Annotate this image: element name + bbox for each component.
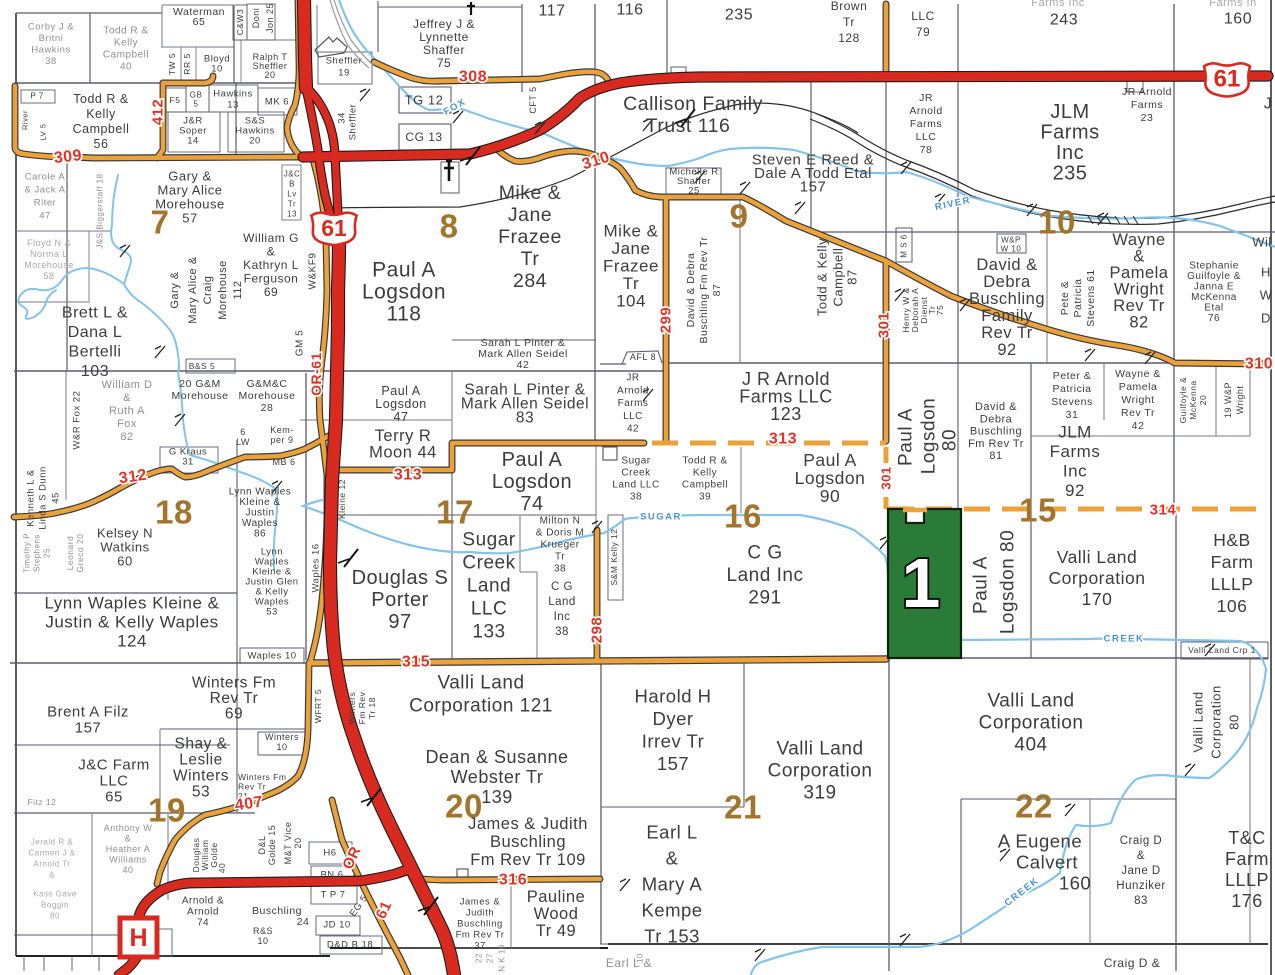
svg-text:103: 103 xyxy=(81,363,109,380)
svg-text:Farms: Farms xyxy=(1131,99,1163,111)
svg-text:Mike &: Mike & xyxy=(604,222,659,241)
svg-text:Wayne &: Wayne & xyxy=(1115,368,1161,380)
svg-text:JLM: JLM xyxy=(1058,423,1092,442)
svg-text:Moon 44: Moon 44 xyxy=(369,444,437,462)
svg-text:319: 319 xyxy=(803,783,836,804)
svg-text:42: 42 xyxy=(517,359,530,371)
svg-text:M S 6: M S 6 xyxy=(900,234,909,257)
svg-text:Kelly: Kelly xyxy=(86,107,116,121)
svg-text:Gary &: Gary & xyxy=(169,271,181,308)
svg-text:A Eugene: A Eugene xyxy=(998,831,1082,852)
svg-text:McKenna: McKenna xyxy=(1188,380,1198,419)
svg-text:74: 74 xyxy=(197,918,209,929)
svg-text:28: 28 xyxy=(261,402,274,414)
svg-text:Winters: Winters xyxy=(173,768,229,785)
svg-text:301: 301 xyxy=(879,466,894,489)
svg-text:Lynn Waples Kleine &: Lynn Waples Kleine & xyxy=(44,594,219,613)
svg-text:Logsdon: Logsdon xyxy=(795,468,866,488)
svg-text:W&P: W&P xyxy=(1001,236,1021,245)
svg-text:Pete &: Pete & xyxy=(1059,281,1071,316)
svg-text:60: 60 xyxy=(117,554,132,569)
svg-text:37: 37 xyxy=(474,941,486,952)
svg-text:Buschling: Buschling xyxy=(457,919,503,930)
svg-text:Morehouse: Morehouse xyxy=(24,260,74,270)
svg-text:David &: David & xyxy=(975,401,1017,413)
svg-text:Buschling: Buschling xyxy=(969,290,1045,308)
svg-text:N K 19: N K 19 xyxy=(498,944,507,972)
svg-text:J: J xyxy=(1264,96,1273,113)
svg-text:JD 10: JD 10 xyxy=(323,920,350,931)
svg-text:Buschling: Buschling xyxy=(970,426,1022,438)
svg-text:Boggin: Boggin xyxy=(41,901,69,910)
svg-text:Dyer: Dyer xyxy=(652,708,693,729)
svg-text:315: 315 xyxy=(402,654,430,671)
svg-text:1: 1 xyxy=(902,544,941,622)
svg-text:Campbell: Campbell xyxy=(103,50,149,61)
svg-text:Waples 10: Waples 10 xyxy=(247,651,296,662)
svg-text:Fm Rev Tr: Fm Rev Tr xyxy=(968,438,1024,450)
svg-text:W: W xyxy=(1260,288,1273,303)
svg-text:86: 86 xyxy=(254,529,266,540)
svg-text:&: & xyxy=(1137,850,1145,862)
svg-text:Arnold &: Arnold & xyxy=(182,896,224,907)
svg-text:Corporation: Corporation xyxy=(979,713,1084,734)
svg-text:Etal: Etal xyxy=(1204,303,1223,314)
svg-text:CFT 5: CFT 5 xyxy=(528,86,538,113)
svg-text:301: 301 xyxy=(876,312,893,339)
svg-text:Debra: Debra xyxy=(980,413,1013,425)
svg-text:82: 82 xyxy=(120,431,133,443)
svg-text:87: 87 xyxy=(845,269,860,284)
svg-text:C&W3: C&W3 xyxy=(235,9,245,36)
svg-text:65: 65 xyxy=(193,16,206,28)
svg-text:H: H xyxy=(1261,265,1271,280)
svg-text:D&D B 18: D&D B 18 xyxy=(327,940,373,951)
svg-text:243: 243 xyxy=(1050,12,1078,29)
svg-text:47: 47 xyxy=(394,410,409,424)
svg-text:Callison Family: Callison Family xyxy=(623,93,763,115)
svg-text:Anthony W: Anthony W xyxy=(104,823,153,833)
svg-text:5: 5 xyxy=(194,100,199,109)
svg-text:69: 69 xyxy=(264,285,278,299)
svg-text:133: 133 xyxy=(472,622,505,643)
svg-text:James &: James & xyxy=(460,897,501,908)
svg-text:Jane D: Jane D xyxy=(1121,865,1160,877)
svg-text:Stephens: Stephens xyxy=(33,534,42,572)
svg-text:Kelly: Kelly xyxy=(114,38,138,49)
svg-text:Todd R &: Todd R & xyxy=(682,456,727,467)
svg-text:Jane: Jane xyxy=(612,239,651,258)
svg-text:JR: JR xyxy=(919,92,933,104)
svg-text:Kelsey N: Kelsey N xyxy=(97,526,153,541)
svg-text:Corporation 121: Corporation 121 xyxy=(409,696,553,717)
svg-text:Stevens 61: Stevens 61 xyxy=(1085,269,1097,327)
svg-text:Earl L: Earl L xyxy=(646,822,697,843)
svg-text:Brent A Filz: Brent A Filz xyxy=(47,704,129,721)
svg-text:157: 157 xyxy=(800,179,827,196)
svg-text:8: 8 xyxy=(440,208,459,245)
svg-text:Sheffler: Sheffler xyxy=(348,104,359,141)
svg-text:Norma L: Norma L xyxy=(30,249,68,259)
svg-text:Farms: Farms xyxy=(618,398,649,409)
svg-text:128: 128 xyxy=(838,31,860,45)
svg-text:83: 83 xyxy=(1134,895,1148,907)
svg-text:Sheffler: Sheffler xyxy=(326,56,363,67)
svg-text:C G: C G xyxy=(747,543,782,564)
svg-text:&: & xyxy=(49,871,55,880)
svg-text:Craig D: Craig D xyxy=(1120,835,1162,847)
svg-text:Wright: Wright xyxy=(1121,394,1154,406)
svg-text:Carole A: Carole A xyxy=(25,172,66,183)
svg-text:16: 16 xyxy=(724,498,762,535)
svg-text:Morehouse: Morehouse xyxy=(238,390,295,402)
svg-text:Creek: Creek xyxy=(462,553,515,574)
svg-text:39: 39 xyxy=(699,492,711,503)
svg-text:Paul A: Paul A xyxy=(502,449,563,471)
svg-text:42: 42 xyxy=(1132,420,1145,432)
svg-text:Arnold Tr: Arnold Tr xyxy=(34,860,71,869)
svg-text:56: 56 xyxy=(94,137,109,151)
svg-text:Buschling: Buschling xyxy=(252,905,302,917)
svg-text:Corporation: Corporation xyxy=(1049,568,1146,588)
svg-text:Sugar: Sugar xyxy=(462,530,515,551)
svg-text:Todd R &: Todd R & xyxy=(103,26,148,37)
svg-text:87: 87 xyxy=(711,284,723,297)
svg-text:118: 118 xyxy=(387,303,422,326)
svg-text:Winters: Winters xyxy=(347,692,357,724)
svg-text:40: 40 xyxy=(120,62,132,73)
svg-text:OR-61: OR-61 xyxy=(308,352,324,396)
svg-text:Rev Tr: Rev Tr xyxy=(981,324,1033,342)
svg-text:Jeffrey J &: Jeffrey J & xyxy=(413,17,475,31)
svg-text:W&KF9: W&KF9 xyxy=(308,253,319,290)
svg-text:80: 80 xyxy=(940,429,961,451)
svg-text:Wayne: Wayne xyxy=(1112,231,1165,249)
svg-text:Winters Fm: Winters Fm xyxy=(192,675,276,692)
svg-text:Lynnette: Lynnette xyxy=(419,30,469,44)
svg-text:298: 298 xyxy=(589,617,606,644)
svg-text:Carmen J &: Carmen J & xyxy=(28,849,75,858)
svg-text:Irrev Tr: Irrev Tr xyxy=(642,731,705,752)
svg-text:Tr 153: Tr 153 xyxy=(644,926,700,947)
svg-text:Peter &: Peter & xyxy=(1053,370,1092,382)
svg-text:Campbell: Campbell xyxy=(831,248,846,307)
svg-text:Jane: Jane xyxy=(508,204,552,226)
svg-text:Valli Land: Valli Land xyxy=(987,691,1074,712)
svg-text:Guilfoyle &: Guilfoyle & xyxy=(1178,377,1188,424)
svg-text:81: 81 xyxy=(989,450,1002,462)
svg-text:104: 104 xyxy=(616,292,646,311)
svg-text:LLC: LLC xyxy=(623,411,643,422)
svg-text:14: 14 xyxy=(187,136,199,147)
svg-text:404: 404 xyxy=(1014,735,1047,756)
svg-text:Bertelli: Bertelli xyxy=(69,344,122,361)
svg-text:Gary &: Gary & xyxy=(168,169,211,184)
svg-text:Lv: Lv xyxy=(287,190,296,199)
svg-text:R&S: R&S xyxy=(253,926,273,936)
svg-text:WFRT 5: WFRT 5 xyxy=(313,689,323,723)
svg-text:116: 116 xyxy=(616,2,643,19)
svg-text:9: 9 xyxy=(730,198,749,235)
svg-text:P 7: P 7 xyxy=(30,92,43,101)
svg-text:Arnold: Arnold xyxy=(187,907,219,918)
svg-text:79: 79 xyxy=(916,25,930,39)
svg-text:Terry R: Terry R xyxy=(375,427,432,445)
svg-text:Pauline: Pauline xyxy=(527,888,586,906)
svg-text:Ruth A: Ruth A xyxy=(109,405,145,417)
svg-text:H: H xyxy=(129,924,147,952)
svg-text:40: 40 xyxy=(217,863,227,873)
svg-text:Logsdon: Logsdon xyxy=(362,281,446,304)
svg-text:& Doris M: & Doris M xyxy=(536,528,584,539)
svg-text:123: 123 xyxy=(770,404,802,424)
svg-text:57: 57 xyxy=(182,211,197,226)
svg-text:61: 61 xyxy=(321,215,347,241)
svg-text:Land: Land xyxy=(467,576,511,597)
svg-text:William D: William D xyxy=(102,379,153,391)
svg-text:GB: GB xyxy=(190,91,203,100)
svg-text:BN 6: BN 6 xyxy=(320,870,343,881)
svg-text:157: 157 xyxy=(75,720,102,737)
svg-text:80: 80 xyxy=(50,912,60,921)
svg-text:Morehouse: Morehouse xyxy=(217,260,229,320)
svg-text:124: 124 xyxy=(117,632,147,651)
svg-text:Mary Alice &: Mary Alice & xyxy=(187,256,199,323)
svg-text:Justin: Justin xyxy=(245,508,274,519)
svg-text:19: 19 xyxy=(148,792,186,829)
svg-text:Linda S Dunn: Linda S Dunn xyxy=(38,466,49,530)
svg-text:Hawkins: Hawkins xyxy=(31,45,70,56)
svg-text:Golde 15: Golde 15 xyxy=(267,825,277,866)
svg-text:Todd & Kelly: Todd & Kelly xyxy=(815,238,830,316)
svg-text:W&R Fox 22: W&R Fox 22 xyxy=(72,391,83,450)
svg-text:18: 18 xyxy=(155,494,193,531)
svg-text:38: 38 xyxy=(45,56,57,67)
svg-text:Tr: Tr xyxy=(623,274,639,293)
svg-text:Mike &: Mike & xyxy=(499,182,562,204)
svg-text:7: 7 xyxy=(151,204,170,241)
svg-text:&: & xyxy=(123,392,131,404)
svg-text:Dean & Susanne: Dean & Susanne xyxy=(425,747,568,767)
svg-text:34: 34 xyxy=(337,112,348,124)
svg-text:Janna E: Janna E xyxy=(1194,282,1234,293)
svg-text:Patricia: Patricia xyxy=(1072,278,1084,317)
svg-text:106: 106 xyxy=(1217,596,1248,616)
svg-text:112: 112 xyxy=(232,280,244,299)
svg-text:47: 47 xyxy=(39,211,51,222)
svg-text:Valli Land: Valli Land xyxy=(437,673,524,694)
svg-text:Wil: Wil xyxy=(1252,235,1272,250)
svg-text:Valli Land: Valli Land xyxy=(1191,691,1206,752)
svg-text:31: 31 xyxy=(1066,409,1079,421)
svg-text:Jerald R &: Jerald R & xyxy=(31,838,74,847)
svg-text:10: 10 xyxy=(257,936,268,946)
svg-text:20: 20 xyxy=(249,136,261,147)
svg-text:Shay &: Shay & xyxy=(175,736,228,753)
svg-text:W 10: W 10 xyxy=(1001,245,1022,254)
svg-text:58: 58 xyxy=(43,271,54,281)
svg-text:Patricia: Patricia xyxy=(1052,383,1091,395)
svg-text:Logsdon: Logsdon xyxy=(919,398,940,474)
svg-text:69: 69 xyxy=(225,706,243,723)
svg-text:Fox: Fox xyxy=(117,418,137,430)
svg-text:Tr: Tr xyxy=(555,552,565,563)
svg-text:Leonard: Leonard xyxy=(65,536,75,571)
svg-text:Britni: Britni xyxy=(39,33,64,44)
svg-text:75: 75 xyxy=(935,305,945,315)
svg-text:Rev Tr: Rev Tr xyxy=(1121,407,1155,419)
svg-text:Trust 116: Trust 116 xyxy=(646,115,731,137)
svg-text:Harold H: Harold H xyxy=(635,686,712,707)
svg-text:82: 82 xyxy=(1129,314,1148,332)
svg-text:Paul A: Paul A xyxy=(381,384,420,398)
svg-text:Sugar: Sugar xyxy=(621,456,650,467)
svg-text:Valli Land Crp 1: Valli Land Crp 1 xyxy=(1188,645,1256,655)
svg-text:Kass Gave: Kass Gave xyxy=(33,890,77,899)
svg-text:Morehouse: Morehouse xyxy=(171,390,228,402)
svg-text:53: 53 xyxy=(266,607,278,618)
svg-text:Tr: Tr xyxy=(843,15,855,29)
svg-text:J&C Farm: J&C Farm xyxy=(78,757,150,774)
svg-text:20: 20 xyxy=(264,70,275,80)
svg-text:92: 92 xyxy=(997,341,1016,359)
svg-text:235: 235 xyxy=(1053,163,1088,185)
svg-text:&: & xyxy=(125,834,132,844)
svg-text:&: & xyxy=(267,245,276,259)
svg-text:Milton N: Milton N xyxy=(540,516,581,527)
svg-text:Jon 25: Jon 25 xyxy=(265,3,275,33)
svg-text:M&T Vice: M&T Vice xyxy=(283,822,293,865)
svg-text:Brown: Brown xyxy=(831,0,868,13)
svg-text:& Jack A: & Jack A xyxy=(25,185,66,196)
svg-text:Tr: Tr xyxy=(521,248,540,270)
svg-text:Inc: Inc xyxy=(1063,462,1087,481)
svg-text:76: 76 xyxy=(1208,313,1220,324)
svg-text:13: 13 xyxy=(227,100,239,111)
svg-text:10: 10 xyxy=(1038,204,1076,241)
svg-text:&: & xyxy=(1133,248,1145,266)
svg-text:24: 24 xyxy=(297,916,310,928)
svg-text:LW: LW xyxy=(236,437,250,447)
svg-text:38: 38 xyxy=(555,626,569,638)
svg-text:Rev Tr: Rev Tr xyxy=(210,690,259,707)
svg-text:157: 157 xyxy=(657,753,689,774)
svg-text:Corby J &: Corby J & xyxy=(28,22,74,33)
svg-text:J&S Biggerstaff 18: J&S Biggerstaff 18 xyxy=(96,173,105,248)
svg-text:40: 40 xyxy=(122,865,133,875)
svg-text:139: 139 xyxy=(481,787,513,807)
svg-text:LLC: LLC xyxy=(916,131,937,143)
svg-text:JLM: JLM xyxy=(1050,101,1089,123)
svg-text:309: 309 xyxy=(53,147,83,167)
svg-text:Creek: Creek xyxy=(621,468,651,479)
svg-text:B: B xyxy=(289,180,295,189)
svg-text:Krueger: Krueger xyxy=(540,540,579,551)
svg-text:Lynn Waples: Lynn Waples xyxy=(229,487,292,498)
svg-text:20: 20 xyxy=(1198,395,1208,405)
svg-text:80: 80 xyxy=(1227,714,1242,729)
svg-text:JR: JR xyxy=(626,373,639,384)
svg-text:Family: Family xyxy=(981,307,1033,325)
svg-text:Kleine &: Kleine & xyxy=(239,497,280,508)
svg-text:Craig D &: Craig D & xyxy=(1104,956,1161,970)
svg-text:19: 19 xyxy=(338,68,350,79)
svg-text:Craig: Craig xyxy=(202,276,214,305)
svg-text:RR 5: RR 5 xyxy=(182,53,192,74)
svg-text:61: 61 xyxy=(1214,66,1241,93)
svg-text:Brett L &: Brett L & xyxy=(62,305,128,322)
svg-text:Corporation: Corporation xyxy=(768,761,873,782)
svg-text:Tr 18: Tr 18 xyxy=(367,697,377,719)
svg-text:Fitz 12: Fitz 12 xyxy=(27,797,56,807)
svg-text:Tr 49: Tr 49 xyxy=(536,922,576,940)
svg-text:27: 27 xyxy=(486,953,495,963)
svg-text:Fm Rev Tr 109: Fm Rev Tr 109 xyxy=(470,851,586,869)
svg-text:CREEK: CREEK xyxy=(1104,634,1145,645)
svg-text:Paul A: Paul A xyxy=(971,556,992,614)
svg-text:160: 160 xyxy=(1059,873,1091,894)
svg-text:&: & xyxy=(666,848,679,869)
svg-text:Logsdon: Logsdon xyxy=(492,471,572,493)
svg-text:Frazee: Frazee xyxy=(603,257,659,276)
svg-text:LLC: LLC xyxy=(911,9,935,23)
svg-text:Todd R &: Todd R & xyxy=(73,92,129,106)
svg-text:19 W&P: 19 W&P xyxy=(1223,382,1233,418)
svg-text:Doni: Doni xyxy=(251,8,261,29)
svg-text:Williams: Williams xyxy=(109,855,147,865)
svg-text:Hawkins: Hawkins xyxy=(213,89,252,100)
svg-text:74: 74 xyxy=(520,493,543,515)
svg-text:Logsdon: Logsdon xyxy=(375,397,426,411)
svg-text:Kempe: Kempe xyxy=(641,900,702,921)
svg-text:38: 38 xyxy=(630,492,642,503)
svg-text:92: 92 xyxy=(1065,481,1085,500)
svg-text:B&S 5: B&S 5 xyxy=(189,361,216,371)
svg-text:H&B: H&B xyxy=(1213,530,1250,550)
svg-text:31: 31 xyxy=(182,457,194,468)
svg-text:Waples 16: Waples 16 xyxy=(311,543,322,592)
svg-text:Land LLC: Land LLC xyxy=(612,480,659,491)
svg-text:20 G&M: 20 G&M xyxy=(179,378,221,390)
svg-text:45: 45 xyxy=(51,492,62,504)
svg-text:316: 316 xyxy=(499,872,527,889)
svg-text:T&C: T&C xyxy=(1228,828,1266,848)
svg-text:MK 6: MK 6 xyxy=(265,97,289,108)
svg-text:T P 7: T P 7 xyxy=(321,890,346,901)
svg-text:10: 10 xyxy=(211,64,223,75)
svg-text:313: 313 xyxy=(394,467,422,484)
svg-text:Earl L &: Earl L & xyxy=(606,956,652,970)
svg-text:97: 97 xyxy=(388,611,411,633)
svg-text:Rev Tr: Rev Tr xyxy=(238,782,266,792)
svg-text:Timothy P: Timothy P xyxy=(23,533,32,573)
svg-text:CG 13: CG 13 xyxy=(405,130,442,144)
svg-text:Pamela: Pamela xyxy=(1110,264,1169,282)
svg-text:C G: C G xyxy=(551,581,573,593)
svg-text:117: 117 xyxy=(538,3,565,20)
svg-text:Rev Tr: Rev Tr xyxy=(1113,297,1165,315)
svg-text:299: 299 xyxy=(658,307,675,334)
svg-text:170: 170 xyxy=(1082,589,1113,609)
svg-text:Wood: Wood xyxy=(534,905,579,923)
svg-text:22: 22 xyxy=(475,953,484,963)
svg-text:Stephanie: Stephanie xyxy=(1189,261,1239,272)
svg-text:Land: Land xyxy=(548,596,576,608)
svg-text:308: 308 xyxy=(459,69,487,86)
svg-text:Farms: Farms xyxy=(1050,442,1101,461)
svg-text:Farms: Farms xyxy=(910,118,942,130)
svg-text:176: 176 xyxy=(1231,891,1263,911)
